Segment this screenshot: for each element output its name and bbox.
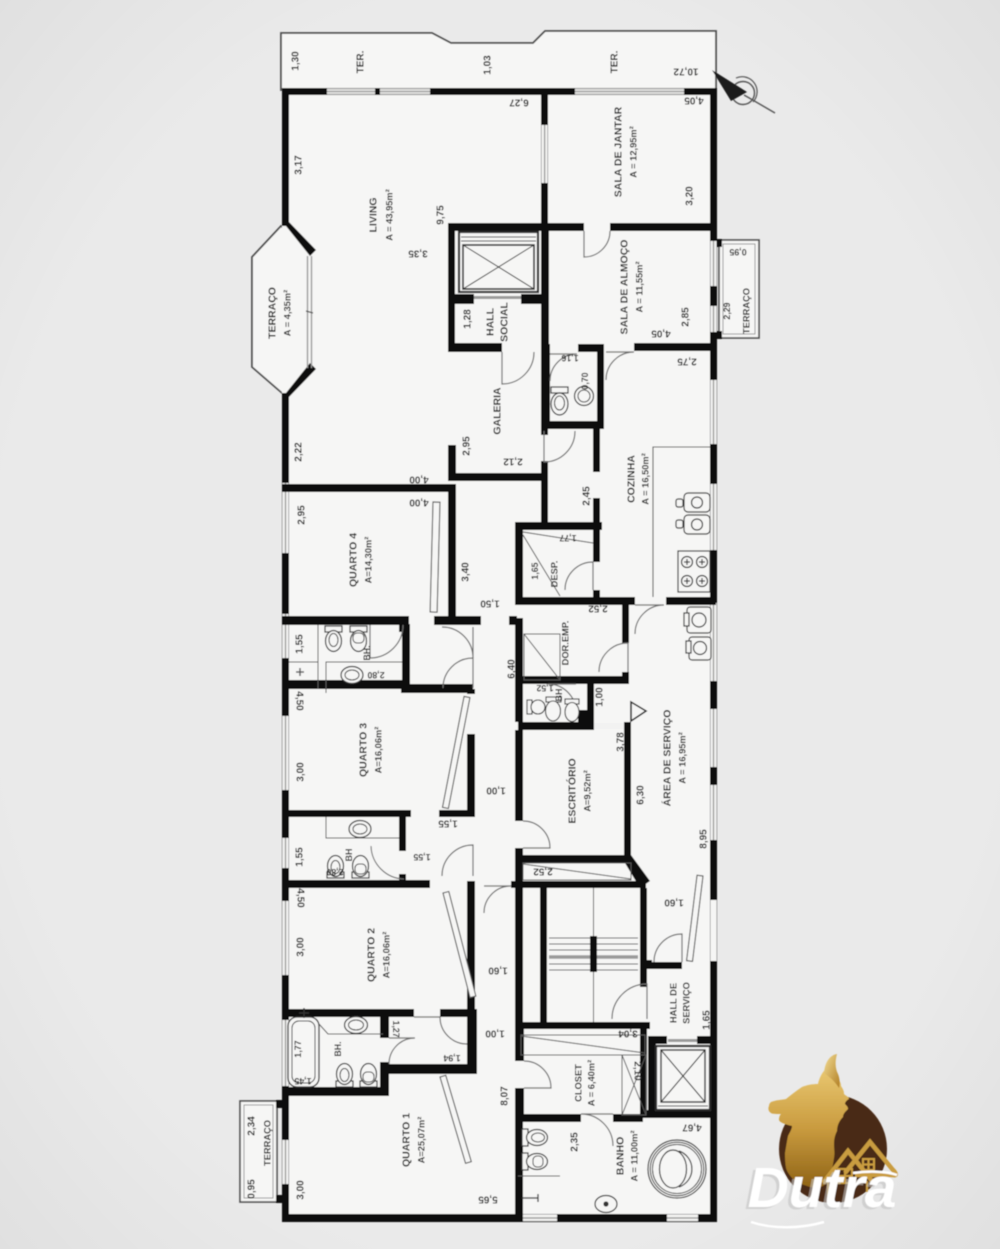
svg-text:2,80: 2,80 xyxy=(326,867,343,877)
svg-text:1,65: 1,65 xyxy=(702,1010,713,1030)
svg-text:6,30: 6,30 xyxy=(636,785,647,805)
svg-text:2,80: 2,80 xyxy=(367,670,384,680)
svg-text:3,00: 3,00 xyxy=(296,937,307,957)
svg-text:Dutra: Dutra xyxy=(748,1156,897,1220)
svg-text:1,45: 1,45 xyxy=(294,1076,311,1086)
svg-text:2,45: 2,45 xyxy=(582,486,593,506)
svg-text:HALL: HALL xyxy=(485,307,497,336)
svg-text:SERVIÇO: SERVIÇO xyxy=(682,982,692,1024)
svg-text:3,00: 3,00 xyxy=(296,762,307,782)
svg-text:2,95: 2,95 xyxy=(462,436,473,456)
svg-text:2,35: 2,35 xyxy=(570,1132,581,1152)
svg-text:1,55: 1,55 xyxy=(295,634,306,654)
svg-text:TERRAÇO: TERRAÇO xyxy=(263,1120,273,1166)
svg-text:BANHO: BANHO xyxy=(615,1137,627,1176)
svg-text:1,27: 1,27 xyxy=(391,1020,401,1037)
svg-text:1,55: 1,55 xyxy=(295,847,306,867)
svg-text:2,10: 2,10 xyxy=(632,1061,643,1081)
svg-text:A = 43,95m²: A = 43,95m² xyxy=(385,189,395,241)
svg-text:ÁREA DE SERVIÇO: ÁREA DE SERVIÇO xyxy=(661,710,674,807)
svg-text:COZINHA: COZINHA xyxy=(626,455,638,503)
svg-text:2,52: 2,52 xyxy=(588,603,608,614)
svg-text:0,95: 0,95 xyxy=(247,1179,258,1199)
svg-text:3,78: 3,78 xyxy=(616,732,627,752)
svg-text:QUARTO 2: QUARTO 2 xyxy=(366,928,378,982)
svg-text:QUARTO 3: QUARTO 3 xyxy=(358,723,370,777)
svg-text:2,52: 2,52 xyxy=(533,866,553,877)
svg-text:6,40: 6,40 xyxy=(507,659,518,679)
svg-text:QUARTO 1: QUARTO 1 xyxy=(401,1113,413,1167)
svg-text:A=9,52m²: A=9,52m² xyxy=(583,770,593,812)
svg-text:CLOSET: CLOSET xyxy=(574,1064,584,1102)
svg-text:2,85: 2,85 xyxy=(681,307,692,327)
svg-text:BH: BH xyxy=(344,849,354,862)
svg-text:1,77: 1,77 xyxy=(293,1040,303,1057)
svg-text:4,05: 4,05 xyxy=(684,95,704,106)
svg-text:A=16,06m²: A=16,06m² xyxy=(374,727,384,774)
svg-text:4,00: 4,00 xyxy=(409,497,429,508)
svg-text:5,65: 5,65 xyxy=(478,1194,498,1205)
svg-text:2,29: 2,29 xyxy=(722,302,732,319)
svg-text:TER.: TER. xyxy=(356,50,367,73)
svg-text:10,72: 10,72 xyxy=(673,66,698,77)
svg-text:SOCIAL: SOCIAL xyxy=(499,302,511,342)
svg-text:2,95: 2,95 xyxy=(297,505,308,525)
svg-text:1,55: 1,55 xyxy=(438,818,458,829)
svg-text:1,00: 1,00 xyxy=(485,1028,505,1039)
svg-text:4,00: 4,00 xyxy=(409,474,429,485)
svg-text:9,75: 9,75 xyxy=(436,205,447,225)
svg-text:QUARTO 4: QUARTO 4 xyxy=(348,533,360,587)
svg-text:A=14,30m²: A=14,30m² xyxy=(364,537,374,584)
svg-text:3,00: 3,00 xyxy=(296,1180,307,1200)
svg-text:DOR.EMP.: DOR.EMP. xyxy=(561,621,571,666)
svg-text:TERRAÇO: TERRAÇO xyxy=(267,287,279,339)
svg-text:1,16: 1,16 xyxy=(561,353,578,363)
svg-text:A = 6,40m²: A = 6,40m² xyxy=(587,1060,597,1106)
svg-text:DESP.: DESP. xyxy=(550,561,560,588)
svg-text:4,67: 4,67 xyxy=(682,1122,702,1133)
svg-text:TER.: TER. xyxy=(610,50,621,73)
svg-text:2,12: 2,12 xyxy=(503,456,523,467)
svg-text:BH: BH xyxy=(554,689,564,702)
svg-text:3,04: 3,04 xyxy=(618,1028,638,1039)
svg-text:A = 11,55m²: A = 11,55m² xyxy=(635,261,645,312)
svg-text:8,07: 8,07 xyxy=(500,1086,511,1106)
svg-text:A = 12,95m²: A = 12,95m² xyxy=(629,126,639,178)
svg-text:1,30: 1,30 xyxy=(291,51,302,71)
svg-text:3,35: 3,35 xyxy=(408,248,428,259)
svg-text:1,00: 1,00 xyxy=(486,785,506,796)
svg-text:TERRAÇO: TERRAÇO xyxy=(742,288,752,334)
svg-text:ESCRITÓRIO: ESCRITÓRIO xyxy=(566,758,579,823)
svg-text:2,75: 2,75 xyxy=(677,356,697,367)
svg-text:A=16,06m²: A=16,06m² xyxy=(382,932,392,979)
svg-text:2,22: 2,22 xyxy=(294,442,305,462)
svg-text:BH.: BH. xyxy=(362,645,372,660)
svg-text:1,03: 1,03 xyxy=(483,55,494,75)
svg-text:A = 16,95m²: A = 16,95m² xyxy=(678,732,688,784)
svg-text:0,95: 0,95 xyxy=(729,247,746,257)
svg-text:1,94: 1,94 xyxy=(443,1053,460,1063)
svg-text:4,05: 4,05 xyxy=(651,328,671,339)
svg-text:SALA DE JANTAR: SALA DE JANTAR xyxy=(613,106,625,197)
svg-text:1,65: 1,65 xyxy=(530,562,540,579)
svg-text:4,50: 4,50 xyxy=(294,691,305,711)
svg-text:3,20: 3,20 xyxy=(685,186,696,206)
svg-text:GALERIA: GALERIA xyxy=(492,387,504,435)
svg-text:LIVING: LIVING xyxy=(368,197,380,232)
svg-text:1,28: 1,28 xyxy=(463,309,474,329)
svg-text:1,77: 1,77 xyxy=(559,533,576,543)
svg-text:4,50: 4,50 xyxy=(295,888,306,908)
svg-text:2,34: 2,34 xyxy=(247,1116,258,1136)
svg-text:0,70: 0,70 xyxy=(580,372,590,389)
svg-text:A = 11,00m²: A = 11,00m² xyxy=(630,1130,640,1181)
svg-text:3,40: 3,40 xyxy=(461,562,472,582)
svg-text:6,27: 6,27 xyxy=(509,97,529,108)
svg-text:SALA DE ALMOÇO: SALA DE ALMOÇO xyxy=(619,240,631,335)
svg-text:A=25,07m²: A=25,07m² xyxy=(417,1117,427,1164)
svg-text:1,55: 1,55 xyxy=(413,852,430,862)
svg-text:A = 4,35m²: A = 4,35m² xyxy=(283,290,293,336)
svg-text:1,60: 1,60 xyxy=(488,965,508,976)
svg-text:1,50: 1,50 xyxy=(480,598,500,609)
svg-text:HALL DE: HALL DE xyxy=(669,983,679,1023)
svg-text:BH.: BH. xyxy=(333,1041,343,1056)
svg-text:8,95: 8,95 xyxy=(699,829,710,849)
svg-text:1,52: 1,52 xyxy=(536,683,553,693)
svg-text:1,60: 1,60 xyxy=(664,897,684,908)
svg-text:1,00: 1,00 xyxy=(595,687,606,707)
svg-text:A = 16,50m²: A = 16,50m² xyxy=(641,453,651,505)
svg-text:3,17: 3,17 xyxy=(294,155,305,175)
